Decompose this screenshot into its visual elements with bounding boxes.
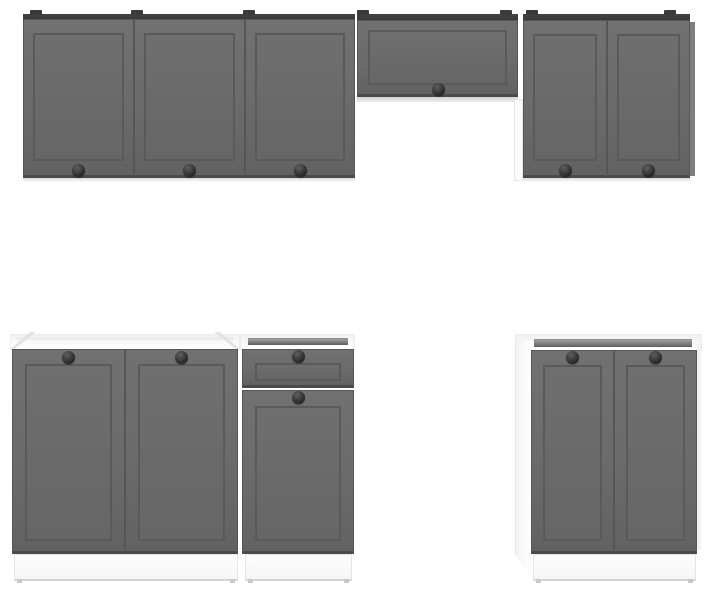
base-door-right-1-panel bbox=[543, 365, 602, 541]
base-right-top-recess bbox=[534, 339, 692, 347]
base-door-right-1-knob bbox=[566, 351, 579, 364]
wall-door-4-knob bbox=[559, 164, 572, 177]
sink-base-door-left-knob bbox=[62, 351, 75, 364]
mount-tab-4 bbox=[357, 10, 369, 15]
sink-base-door-right-panel bbox=[138, 364, 225, 541]
wall-door-4-panel bbox=[533, 34, 597, 161]
sink-top-recess bbox=[16, 337, 234, 340]
wall-door-5-panel bbox=[617, 34, 680, 161]
base-right-side-panel bbox=[515, 341, 532, 578]
hood-flip-door-panel bbox=[368, 30, 507, 85]
wall-door-1-knob bbox=[72, 164, 85, 177]
mount-tab-2 bbox=[131, 10, 143, 15]
plinth-sink-base-foot-right bbox=[230, 579, 235, 583]
base-right-edge bbox=[697, 344, 701, 550]
sink-base-door-left-panel bbox=[25, 364, 112, 541]
plinth-right-base-foot-left bbox=[536, 579, 541, 583]
base-door-mid-knob bbox=[292, 391, 305, 404]
wall-door-2-panel bbox=[144, 33, 235, 161]
wall-door-5-knob bbox=[642, 164, 655, 177]
plinth-mid-base bbox=[245, 554, 352, 581]
mount-tab-3 bbox=[243, 10, 255, 15]
plinth-mid-base-foot-right bbox=[344, 579, 349, 583]
wall-right-side-panel-white bbox=[514, 99, 523, 181]
base-door-mid-panel bbox=[255, 406, 341, 541]
drawer-top-recess bbox=[248, 338, 348, 345]
sink-base-door-right-knob bbox=[175, 351, 188, 364]
plinth-right-base-foot-right bbox=[688, 579, 693, 583]
drawer-front-panel bbox=[255, 363, 341, 381]
hood-underside bbox=[357, 97, 518, 102]
wall-door-4 bbox=[523, 20, 607, 178]
wall-door-3 bbox=[245, 19, 355, 178]
plinth-sink-base-foot-left bbox=[17, 579, 22, 583]
mount-tab-5 bbox=[500, 10, 512, 15]
base-door-right-2-panel bbox=[626, 365, 685, 541]
mount-tab-6 bbox=[526, 10, 538, 15]
wall-door-1-panel bbox=[33, 33, 124, 161]
drawer-front-knob bbox=[292, 350, 305, 363]
base-door-right-1 bbox=[531, 350, 614, 554]
kitchen-cabinet-set-photo: Modular kitchen cabinet set with graphit… bbox=[0, 0, 711, 600]
door-shadow-2 bbox=[523, 178, 690, 182]
wall-door-2-knob bbox=[183, 164, 196, 177]
sink-base-door-right bbox=[125, 349, 238, 554]
door-shadow-1 bbox=[23, 178, 355, 182]
wall-door-3-knob bbox=[294, 164, 307, 177]
sink-base-door-left bbox=[12, 349, 125, 554]
plinth-mid-base-foot-left bbox=[248, 579, 253, 583]
wall-right-side-gray bbox=[690, 22, 695, 176]
mount-tab-7 bbox=[664, 10, 676, 15]
wall-door-1 bbox=[23, 19, 134, 178]
base-door-mid bbox=[242, 390, 354, 554]
wall-door-3-panel bbox=[255, 33, 345, 161]
plinth-right-base bbox=[533, 554, 696, 581]
wall-door-5 bbox=[607, 20, 690, 178]
base-door-right-2 bbox=[614, 350, 697, 554]
base-door-right-2-knob bbox=[649, 351, 662, 364]
mount-tab-1 bbox=[30, 10, 42, 15]
wall-door-2 bbox=[134, 19, 245, 178]
hood-flip-door-knob bbox=[432, 83, 445, 96]
plinth-sink-base bbox=[14, 554, 238, 581]
